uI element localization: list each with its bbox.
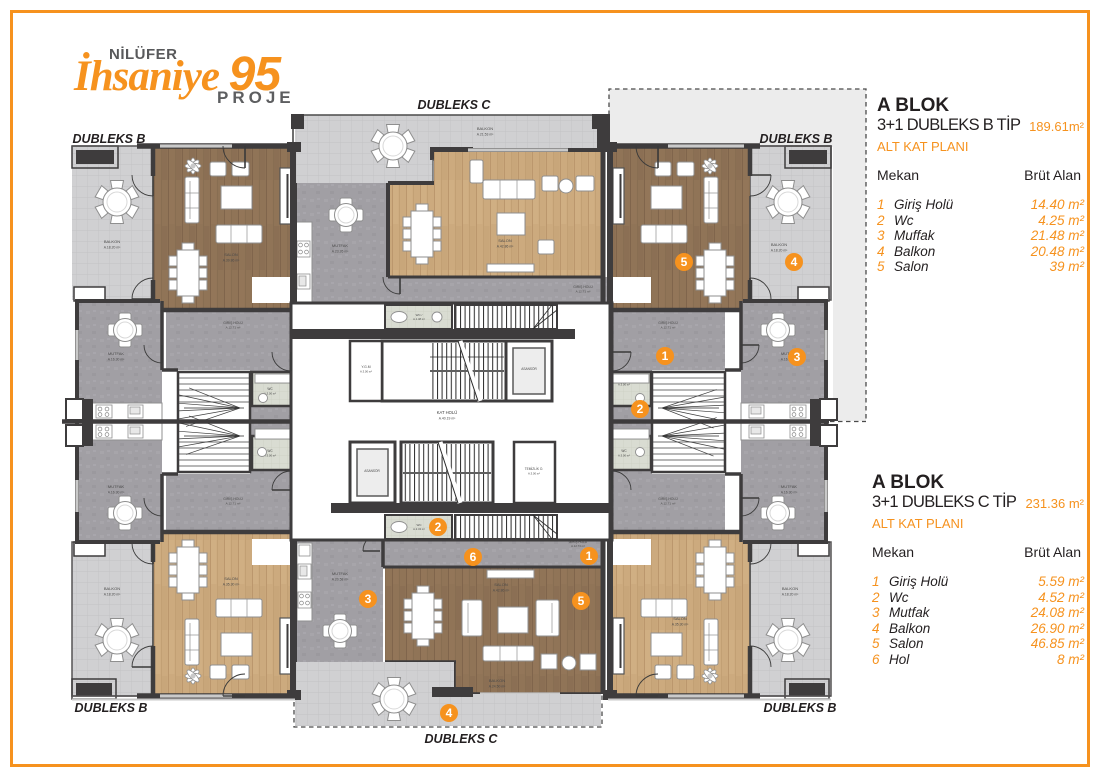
svg-text:6: 6 [470, 550, 477, 564]
svg-text:MUTFAK: MUTFAK [108, 351, 125, 356]
svg-text:DUBLEKS B: DUBLEKS B [75, 701, 148, 715]
svg-text:WC: WC [417, 523, 423, 527]
svg-text:A.40.19 m²: A.40.19 m² [439, 417, 456, 421]
svg-text:A.16.30 m²: A.16.30 m² [781, 491, 798, 495]
svg-text:2: 2 [637, 402, 644, 416]
svg-text:1: 1 [586, 549, 593, 563]
svg-text:MUTFAK: MUTFAK [332, 571, 349, 576]
svg-text:WC: WC [621, 449, 627, 453]
svg-text:5: 5 [681, 255, 688, 269]
svg-text:A.24.50 m²: A.24.50 m² [489, 685, 506, 689]
svg-text:BALKON: BALKON [782, 586, 798, 591]
svg-text:DUBLEKS B: DUBLEKS B [764, 701, 837, 715]
svg-text:DUBLEKS B: DUBLEKS B [760, 132, 833, 146]
svg-text:WC: WC [267, 449, 273, 453]
svg-text:A.12.71 m²: A.12.71 m² [226, 502, 241, 506]
svg-text:KAT HOLÜ: KAT HOLÜ [437, 410, 458, 415]
svg-text:A.2.43 m²: A.2.43 m² [413, 527, 425, 531]
svg-text:A.12.71 m²: A.12.71 m² [661, 502, 676, 506]
svg-text:A.12.73 m²: A.12.73 m² [571, 544, 585, 548]
svg-text:A.12.71 m²: A.12.71 m² [661, 326, 676, 330]
svg-text:WC: WC [267, 387, 273, 391]
svg-text:A.16.30 m²: A.16.30 m² [108, 358, 125, 362]
svg-text:GİRİŞ HOLÜ: GİRİŞ HOLÜ [223, 496, 243, 501]
svg-text:BALKON: BALKON [771, 242, 787, 247]
svg-text:MUTFAK: MUTFAK [781, 484, 798, 489]
svg-text:GİRİŞ HOLÜ: GİRİŞ HOLÜ [658, 320, 678, 325]
svg-text:TEMİZLİK O.: TEMİZLİK O. [525, 466, 544, 471]
svg-text:A.3.00 m²: A.3.00 m² [528, 472, 540, 476]
svg-text:WC /: WC / [416, 313, 423, 317]
svg-text:A.3.00 m²: A.3.00 m² [618, 454, 630, 458]
svg-text:BALKON: BALKON [104, 586, 120, 591]
svg-text:SALON: SALON [498, 238, 512, 243]
svg-text:4: 4 [446, 706, 453, 720]
svg-text:DUBLEKS C: DUBLEKS C [425, 732, 499, 746]
svg-text:A.39.86 m²: A.39.86 m² [223, 259, 240, 263]
svg-text:A.42.86 m²: A.42.86 m² [493, 589, 510, 593]
svg-text:DUBLEKS B: DUBLEKS B [73, 132, 146, 146]
svg-text:ASANSÖR: ASANSÖR [364, 469, 380, 473]
svg-text:Y.G.M: Y.G.M [361, 365, 370, 369]
svg-text:A.23.26 m²: A.23.26 m² [332, 250, 349, 254]
svg-text:1: 1 [662, 349, 669, 363]
svg-text:A.21.53 m²: A.21.53 m² [477, 133, 494, 137]
svg-text:3: 3 [794, 350, 801, 364]
svg-text:A.20.58 m²: A.20.58 m² [332, 578, 349, 582]
svg-text:A.18.20 m²: A.18.20 m² [771, 249, 788, 253]
svg-text:A.3.00 m²: A.3.00 m² [360, 370, 372, 374]
svg-text:MUTFAK: MUTFAK [108, 484, 125, 489]
svg-text:GİRİŞ HOLÜ: GİRİŞ HOLÜ [223, 320, 243, 325]
svg-text:A.35.30 m²: A.35.30 m² [223, 583, 240, 587]
svg-text:SALON: SALON [224, 576, 238, 581]
svg-text:3: 3 [365, 592, 372, 606]
svg-text:A.42.86 m²: A.42.86 m² [497, 245, 514, 249]
svg-text:SALON: SALON [494, 582, 508, 587]
svg-text:BALKON: BALKON [489, 678, 505, 683]
svg-text:A.35.30 m²: A.35.30 m² [672, 623, 689, 627]
svg-text:A.18.20 m²: A.18.20 m² [104, 593, 121, 597]
svg-text:A.18.20 m²: A.18.20 m² [782, 593, 799, 597]
svg-text:BALKON: BALKON [104, 239, 120, 244]
svg-text:A.12.71 m²: A.12.71 m² [576, 290, 591, 294]
svg-text:4: 4 [791, 255, 798, 269]
svg-text:GİRİŞ HOLÜ: GİRİŞ HOLÜ [573, 284, 593, 289]
svg-text:BALKON: BALKON [477, 126, 493, 131]
svg-text:2: 2 [435, 520, 442, 534]
svg-text:ASANSÖR: ASANSÖR [521, 367, 537, 371]
svg-text:A.16.30 m²: A.16.30 m² [108, 491, 125, 495]
svg-text:A.12.71 m²: A.12.71 m² [226, 326, 241, 330]
svg-text:SALON: SALON [224, 252, 238, 257]
svg-text:DUBLEKS C: DUBLEKS C [418, 98, 492, 112]
svg-text:A.18.20 m²: A.18.20 m² [104, 246, 121, 250]
svg-text:5: 5 [578, 594, 585, 608]
svg-text:MUTFAK: MUTFAK [332, 243, 349, 248]
svg-text:GİRİŞ HOLÜ: GİRİŞ HOLÜ [658, 496, 678, 501]
svg-text:A.1.48 m²: A.1.48 m² [413, 317, 425, 321]
